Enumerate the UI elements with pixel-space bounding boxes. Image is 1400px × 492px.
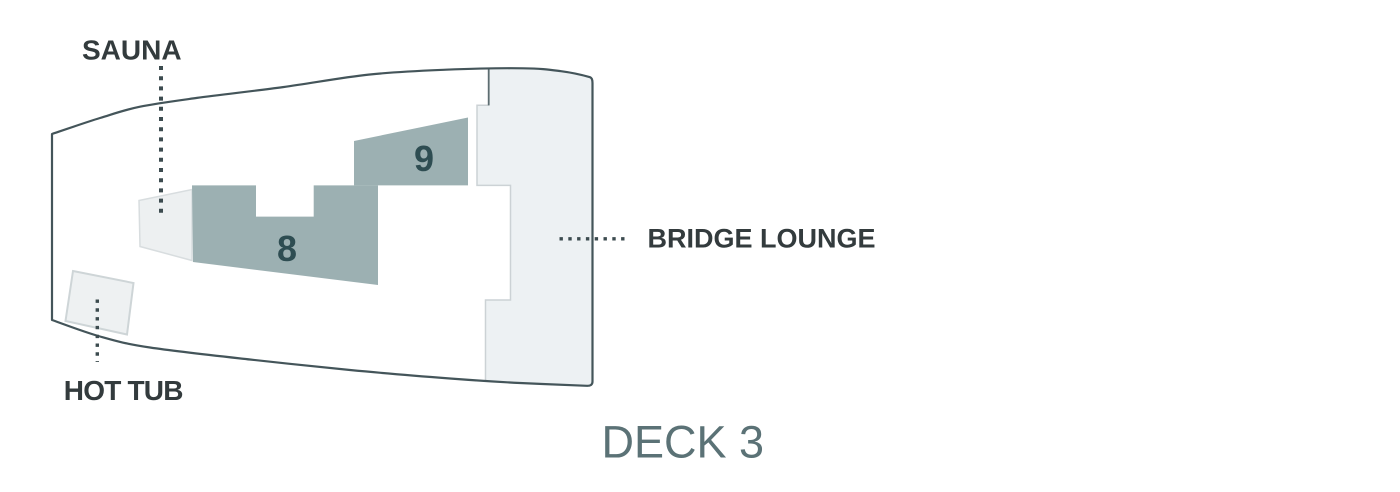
svg-text:BRIDGE LOUNGE: BRIDGE LOUNGE [648, 224, 876, 254]
svg-text:DECK 3: DECK 3 [602, 417, 765, 468]
svg-text:SAUNA: SAUNA [82, 34, 182, 65]
svg-text:9: 9 [414, 138, 434, 179]
svg-text:HOT TUB: HOT TUB [64, 375, 183, 406]
svg-text:8: 8 [277, 228, 297, 269]
